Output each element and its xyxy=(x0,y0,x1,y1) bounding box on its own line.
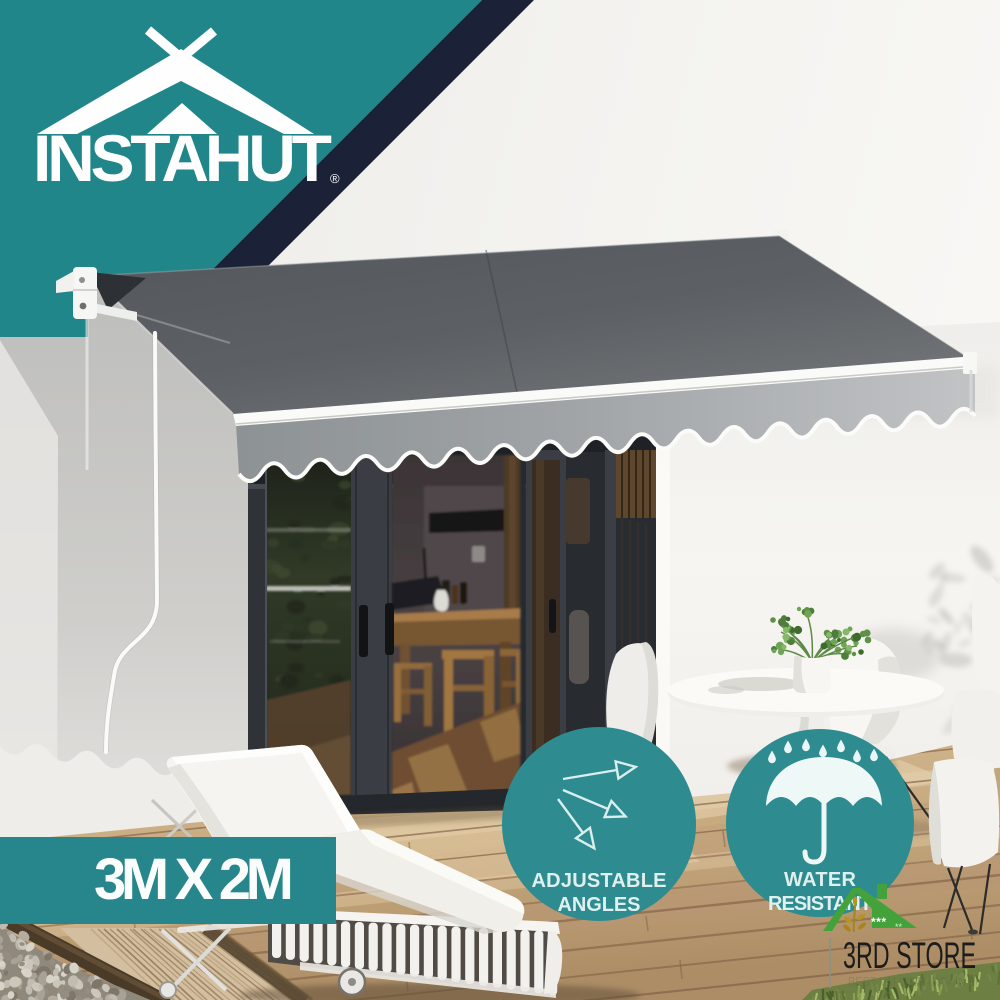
svg-text:**: ** xyxy=(895,922,903,932)
svg-text:ADJUSTABLE: ADJUSTABLE xyxy=(532,870,667,892)
svg-text:WATER: WATER xyxy=(784,869,857,891)
svg-text:®: ® xyxy=(330,171,340,186)
svg-text:***: *** xyxy=(871,915,887,929)
svg-text:BEST VALUE BARGAIN: BEST VALUE BARGAIN xyxy=(848,974,966,989)
svg-text:INSTAHUT: INSTAHUT xyxy=(33,121,332,195)
svg-text:ANGLES: ANGLES xyxy=(558,894,641,916)
svg-text:3RD STORE: 3RD STORE xyxy=(843,935,976,976)
svg-text:3M X 2M: 3M X 2M xyxy=(94,847,294,912)
